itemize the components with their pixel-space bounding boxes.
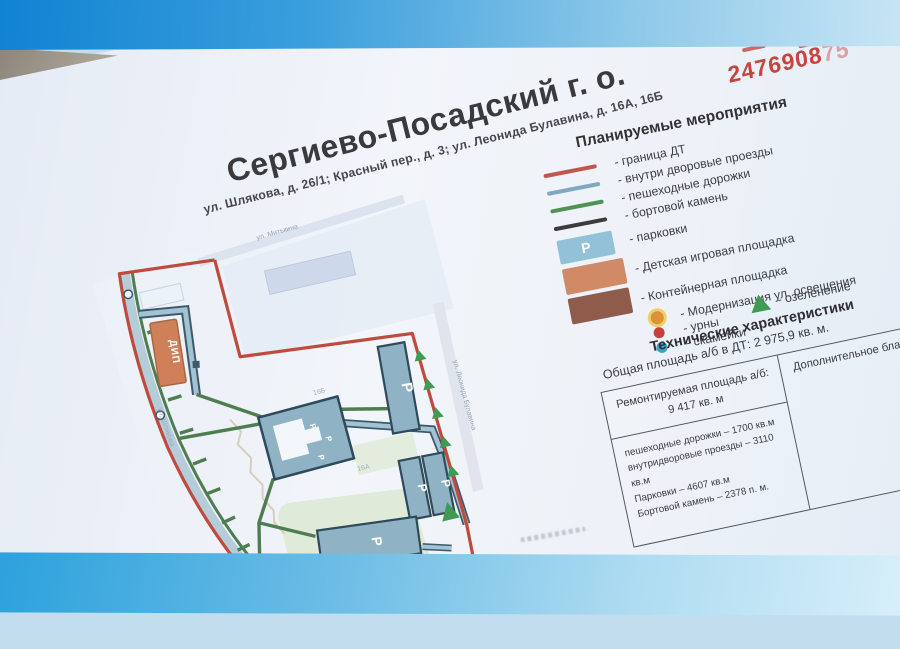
parking-area: Р <box>378 342 423 434</box>
background-top-band <box>0 0 900 50</box>
poster-paper: 247690875 Сергиево-Посадский г. о. ул. Ш… <box>0 40 900 562</box>
node-marker <box>192 361 199 368</box>
svg-text:Р: Р <box>415 483 430 494</box>
photo-of-planning-poster: { "scene": { "background_top_blue": "#0f… <box>0 0 900 608</box>
building-label: 16Б <box>313 387 327 397</box>
background-bottom-band <box>0 552 900 615</box>
courtyard-parking: Р Р Р <box>258 396 354 479</box>
repair-column: Ремонтируемая площадь а/б: 9 417 кв. м п… <box>602 355 811 546</box>
